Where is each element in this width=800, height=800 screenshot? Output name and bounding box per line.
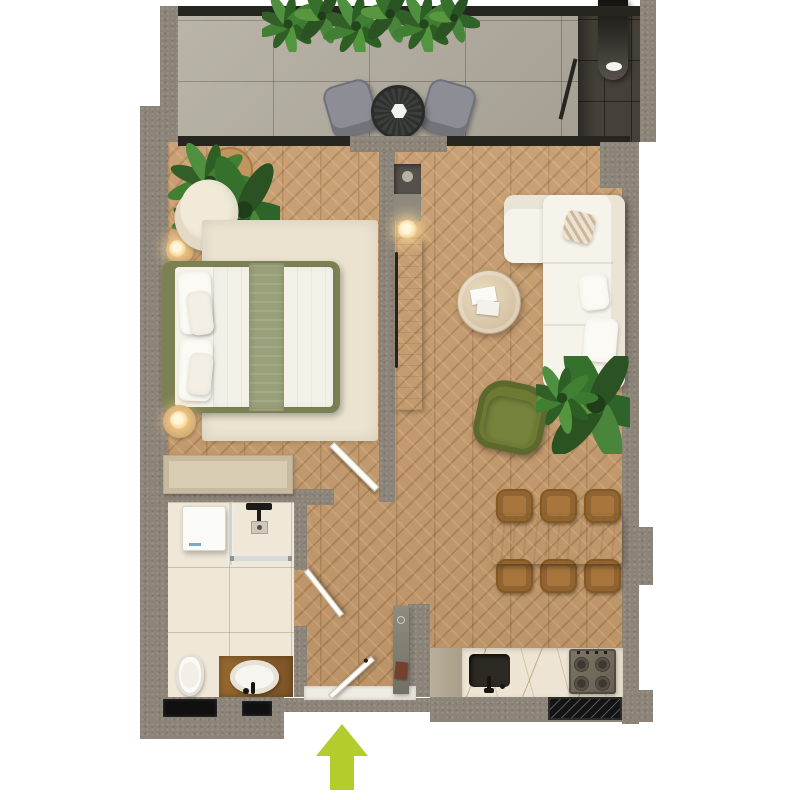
console-book [394,661,408,679]
dining-table [493,515,622,564]
nightstand-lamp [170,411,188,429]
console-decor-ring [397,616,405,624]
sofa-seam-1 [543,262,613,264]
wall-right-corner-block [600,142,639,188]
soap-bottle [500,684,505,689]
drain-pipe-glint [606,62,622,71]
wall-hall-kitchen [408,604,430,697]
burner-1 [574,657,589,672]
burner-3 [574,676,589,691]
cooktop-knobs [577,651,607,654]
entrance-arrow-stem [330,756,354,790]
balcony-hanging-plants [262,0,480,52]
wardrobe-handle [395,252,398,368]
bedroom-dresser [163,455,293,494]
living-room-plants [536,356,630,454]
shower-drain [251,521,268,534]
kitchen-tall-cabinet [430,648,464,697]
drain-pipe-niche [578,16,640,142]
entrance-arrow-head [316,724,368,756]
table-decor [391,104,407,118]
wall-t-junction [350,136,447,152]
coffee-table [457,270,521,334]
toilet [176,654,204,696]
bistro-table [371,85,425,139]
wardrobe-column [393,239,422,410]
burner-4 [595,676,610,691]
sink-faucet [251,682,255,694]
drain-dot [257,525,262,530]
toilet-seat [181,662,199,688]
bathroom-window-1 [163,699,217,717]
gas-cooktop [569,649,616,694]
wardrobe-accent-lamp [398,220,417,239]
wall-right-pillar-notch [637,527,653,585]
sage-throw-runner [249,263,284,411]
faucet-knob [243,688,249,694]
wall-bottom-entry-strip [282,698,432,712]
wardrobe-mid-section [394,194,421,221]
washing-machine [182,506,226,551]
kitchen-faucet-base [484,688,494,693]
floor-plan [0,0,800,800]
bathroom-window-2 [242,701,272,716]
double-bed [162,261,340,413]
dining-chair-6 [584,559,621,593]
sofa-pillow-white-1 [578,272,610,311]
kitchen-faucet [487,676,491,691]
niche-decor [402,171,413,182]
wall-bathroom-right-upper [292,502,307,570]
green-armchair-seat [481,393,539,448]
dining-chair-5 [540,559,577,593]
hallway-console [393,606,409,694]
washer-display [189,543,201,546]
dining-chair-4 [496,559,533,593]
bed-pillow-small-2 [186,352,214,396]
wall-balcony-right [640,0,656,142]
door-handle [363,658,369,664]
magazine-2 [476,300,499,316]
shower-head [246,503,272,510]
wardrobe-display-niche [394,164,421,194]
kitchen-vent-window [548,697,622,720]
shower-glass-door [230,556,292,561]
burner-2 [595,657,610,672]
